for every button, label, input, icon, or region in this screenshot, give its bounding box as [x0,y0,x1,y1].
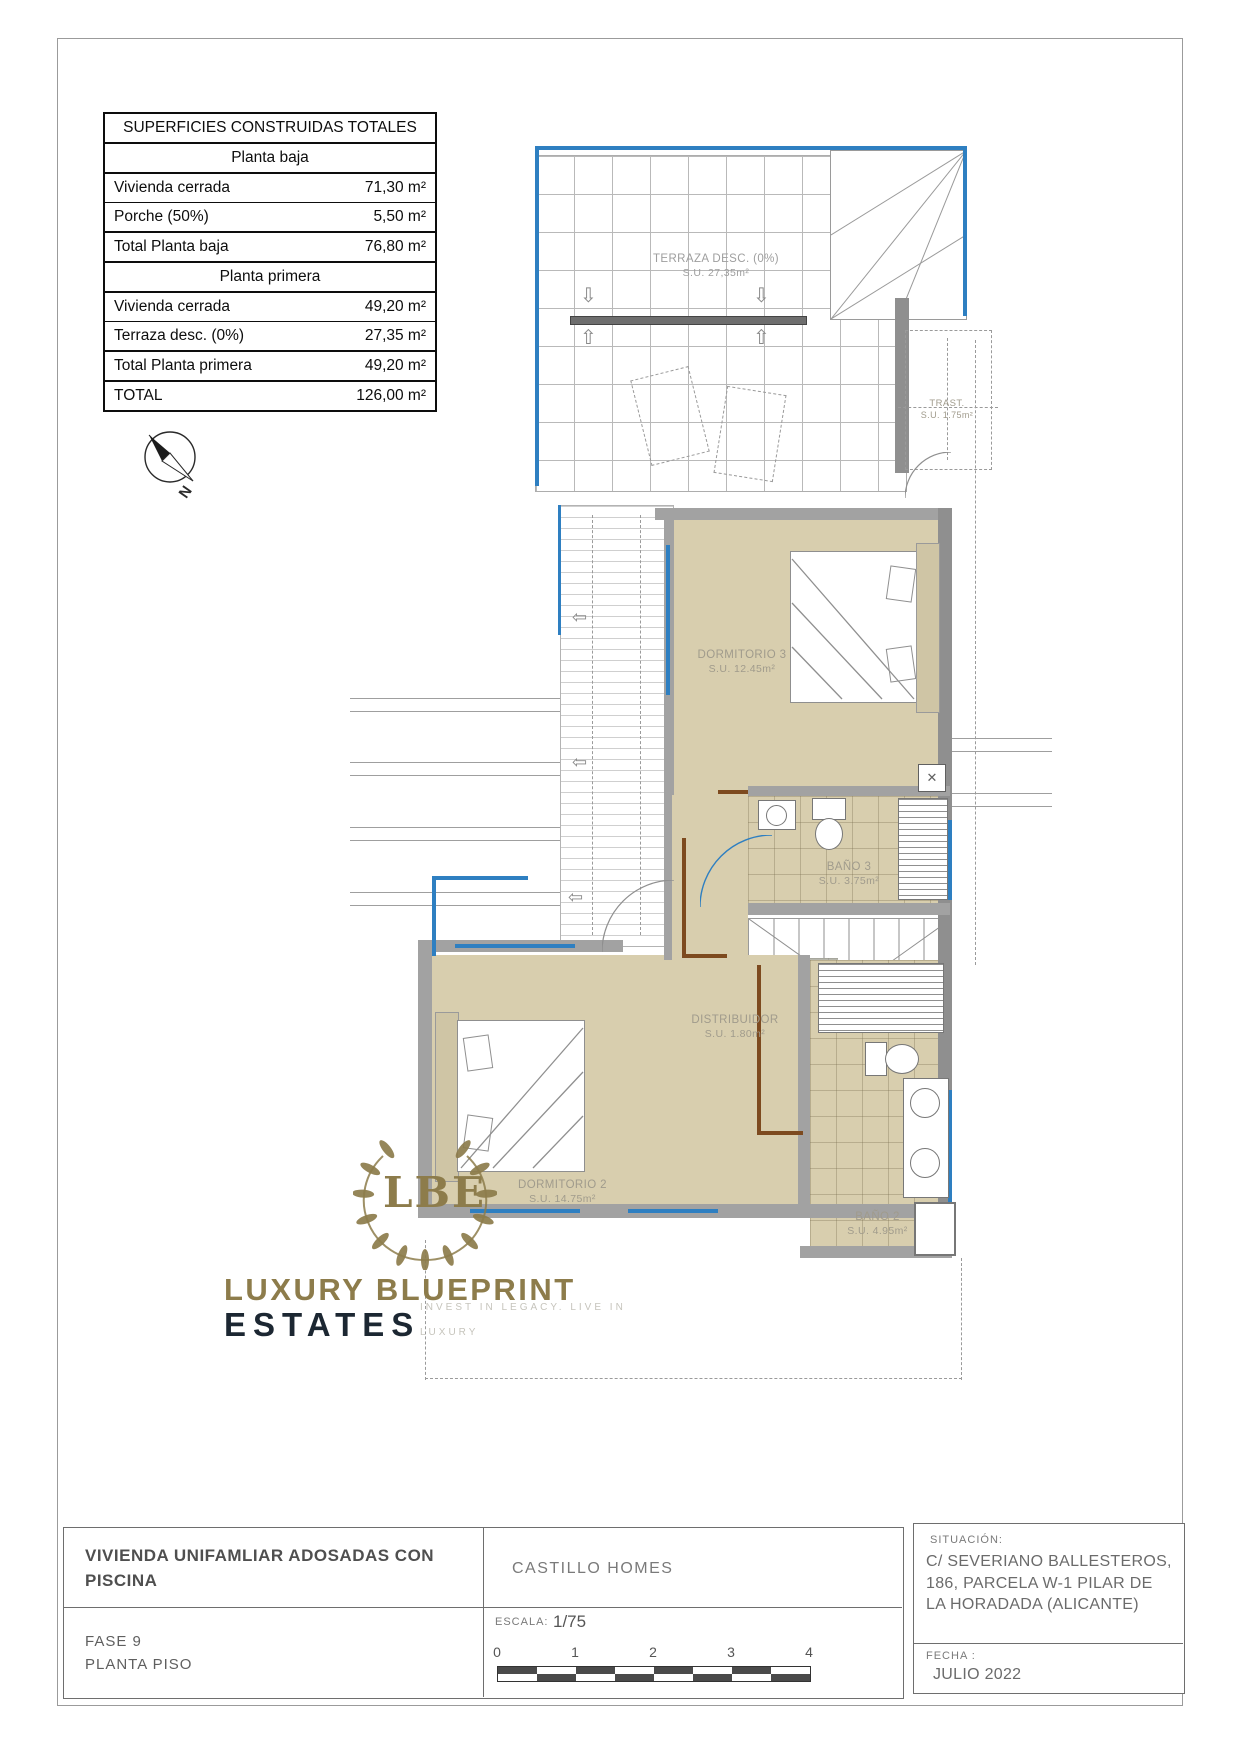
row-label: Total Planta primera [114,357,252,375]
scale-tick: 3 [721,1644,741,1660]
room-name: BAÑO 2 [855,1211,900,1223]
section-label: Planta baja [231,149,309,167]
label-bano-2: BAÑO 2 S.U. 4.95m² [815,1210,940,1239]
wall [798,955,810,1210]
row-label: Terraza desc. (0%) [114,327,244,345]
row-value: 49,20 m² [365,357,426,375]
toilet-tank [865,1042,887,1076]
situacion-line2: 186, PARCELA W-1 PILAR DE [926,1573,1176,1595]
door-arc [700,835,772,907]
party-wall-lines [952,793,1052,807]
room-area: S.U. 12.45m² [668,663,816,677]
pergola-batten [570,316,807,325]
situacion-address: C/ SEVERIANO BALLESTEROS, 186, PARCELA W… [926,1551,1176,1616]
toilet-tank [812,798,846,820]
party-wall-lines [350,827,560,841]
dash-line [975,340,976,965]
shower [818,963,944,1033]
label-dormitorio-3: DORMITORIO 3 S.U. 12.45m² [668,648,816,677]
fecha-label: FECHA : [926,1650,976,1662]
row-value: 71,30 m² [365,179,426,197]
blueprint-page: SUPERFICIES CONSTRUIDAS TOTALES Planta b… [0,0,1240,1755]
logo-wordmark-line2: ESTATES [224,1306,420,1344]
room-name: DORMITORIO 2 [518,1179,607,1191]
label-distribuidor: DISTRIBUIDOR S.U. 1.80m² [655,1013,815,1042]
section-label: Planta primera [220,268,321,286]
door-frame [757,965,761,1135]
table-row: Terraza desc. (0%)27,35 m² [105,321,435,350]
label-bano-3: BAÑO 3 S.U. 3.75m² [789,860,909,889]
room-name: DORMITORIO 3 [698,649,787,661]
roof-stair-structure [830,150,967,320]
phase-line1: FASE 9 [85,1630,465,1653]
logo-monogram: LBE [383,1168,486,1217]
table-row: Vivienda cerrada71,30 m² [105,172,435,202]
room-name: TRAST. [929,398,964,409]
table-title-row: SUPERFICIES CONSTRUIDAS TOTALES [105,114,435,142]
north-compass: N [135,423,205,511]
logo-tagline-line2: LUXURY [420,1327,478,1338]
room-name: TERRAZA DESC. (0%) [653,253,779,265]
table-row: Porche (50%)5,50 m² [105,202,435,231]
blue-perimeter [535,146,539,486]
sink [758,800,796,830]
row-value: 49,20 m² [365,298,426,316]
project-title: VIVIENDA UNIFAMLIAR ADOSADAS CON PISCINA [85,1544,465,1593]
wall [655,508,950,520]
party-wall-lines [350,762,560,776]
row-label: TOTAL [114,387,163,405]
porch-dash [425,1378,962,1379]
situacion-label: SITUACIÓN: [930,1534,1003,1546]
dash-line [592,515,593,935]
room-area: S.U. 14.75m² [490,1193,635,1207]
room-area: S.U. 4.95m² [815,1225,940,1239]
window [628,1209,718,1213]
room-name: BAÑO 3 [827,861,872,873]
scale-tick: 0 [487,1644,507,1660]
label-trastero: TRAST. S.U. 1.75m² [902,398,992,422]
arrow-left-icon: ⇦ [572,753,587,771]
washer-x-mark: ✕ [927,770,938,786]
row-value: 76,80 m² [365,238,426,256]
bed-dormitorio-3 [790,543,940,711]
room-name: DISTRIBUIDOR [691,1014,778,1026]
door-arc [602,880,674,952]
roof-fan-lines [831,151,966,319]
row-value: 5,50 m² [373,208,426,226]
wall [748,903,950,915]
row-value: 126,00 m² [356,387,426,405]
washer-box: ✕ [918,764,946,792]
table-row: TOTAL126,00 m² [105,380,435,410]
blue-perimeter [432,876,528,880]
table-row: Total Planta primera49,20 m² [105,350,435,380]
room-area: S.U. 3.75m² [789,875,909,889]
sink [910,1088,940,1118]
window [455,944,575,948]
toilet-bowl [815,818,843,850]
label-terraza: TERRAZA DESC. (0%) S.U. 27,35m² [616,252,816,281]
door-frame [682,838,686,958]
arrow-left-icon: ⇦ [572,608,587,626]
builder-name: CASTILLO HOMES [512,1560,673,1578]
door-arc [905,452,951,498]
table-section-row: Planta baja [105,142,435,172]
titleblock-divider [483,1527,484,1697]
arrow-up-icon: ⇧ [753,328,770,348]
scale-label: ESCALA: [495,1616,548,1628]
row-label: Porche (50%) [114,208,209,226]
table-section-row: Planta primera [105,261,435,291]
blanket-lines [790,543,940,711]
situacion-line1: C/ SEVERIANO BALLESTEROS, [926,1551,1176,1573]
fecha-value: JULIO 2022 [933,1664,1021,1686]
blue-perimeter [963,146,967,316]
surfaces-table: SUPERFICIES CONSTRUIDAS TOTALES Planta b… [103,112,437,412]
arrow-up-icon: ⇧ [580,328,597,348]
compass-icon: N [135,423,205,511]
room-area: S.U. 1.75m² [902,410,992,422]
arrow-left-icon: ⇦ [568,888,583,906]
row-label: Total Planta baja [114,238,229,256]
situacion-line3: LA HORADADA (ALICANTE) [926,1594,1176,1616]
logo-tagline-line1: INVEST IN LEGACY. LIVE IN [420,1302,626,1313]
door-frame [682,954,727,958]
porch-dash [961,1258,962,1380]
door-frame [718,790,748,794]
door-frame [757,1131,803,1135]
scale-tick: 1 [565,1644,585,1660]
scale-bar [497,1666,811,1682]
row-label: Vivienda cerrada [114,298,230,316]
row-label: Vivienda cerrada [114,179,230,197]
toilet-bowl [885,1044,919,1074]
titleblock-divider [63,1607,902,1608]
window [948,820,952,900]
blue-perimeter [432,876,436,956]
scale-tick: 2 [643,1644,663,1660]
label-dormitorio-2: DORMITORIO 2 S.U. 14.75m² [490,1178,635,1207]
scale-tick: 4 [799,1644,819,1660]
table-title: SUPERFICIES CONSTRUIDAS TOTALES [123,119,417,137]
phase-block: FASE 9 PLANTA PISO [85,1630,465,1677]
table-row: Total Planta baja76,80 m² [105,231,435,261]
row-value: 27,35 m² [365,327,426,345]
party-wall-lines [952,738,1052,752]
titleblock-divider [913,1643,1183,1644]
phase-line2: PLANTA PISO [85,1653,465,1676]
arrow-down-icon: ⇩ [580,286,597,306]
sink [910,1148,940,1178]
compass-n-label: N [176,483,196,502]
room-area: S.U. 1.80m² [655,1028,815,1042]
party-wall-lines [350,698,560,712]
party-wall-lines [350,892,560,906]
blue-perimeter [535,146,967,150]
arrow-down-icon: ⇩ [753,286,770,306]
dash-line [640,515,641,935]
table-row: Vivienda cerrada49,20 m² [105,291,435,321]
scale-value: 1/75 [553,1612,586,1632]
blue-perimeter [558,505,561,635]
room-area: S.U. 27,35m² [616,267,816,281]
